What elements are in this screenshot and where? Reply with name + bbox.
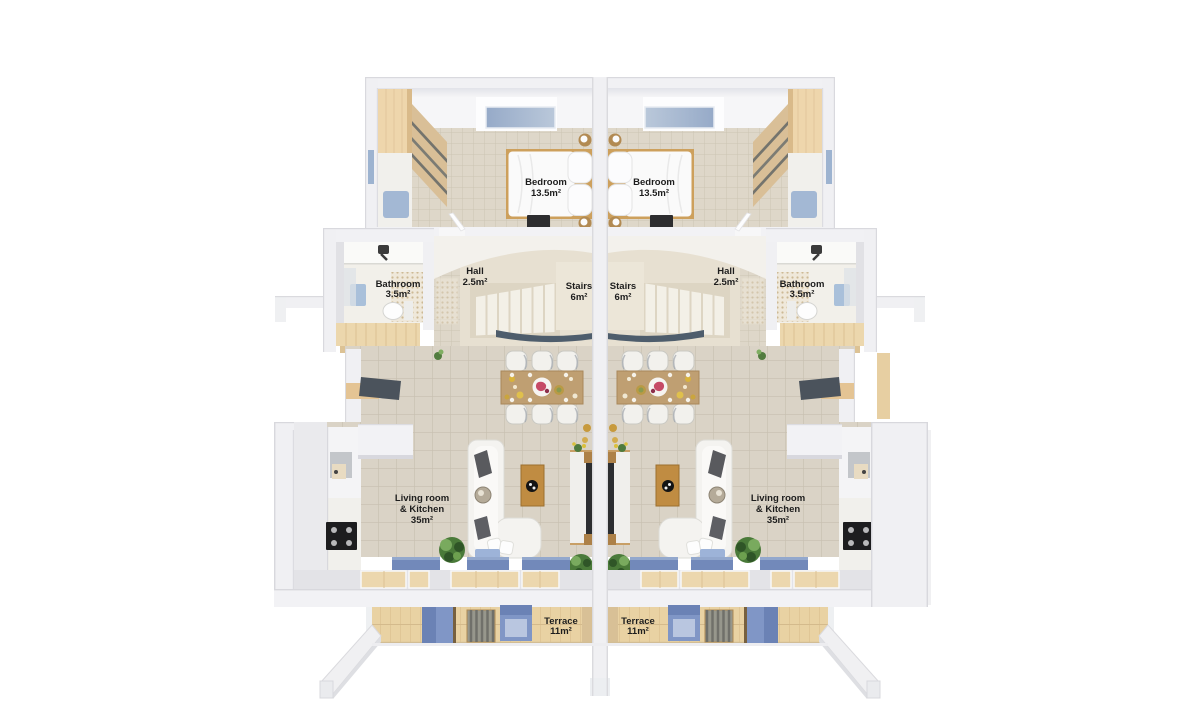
svg-text:Bedroom: Bedroom <box>525 177 567 188</box>
svg-text:3.5m²: 3.5m² <box>790 289 815 300</box>
svg-text:Living room: Living room <box>751 493 805 504</box>
svg-text:6m²: 6m² <box>615 292 632 303</box>
svg-text:& Kitchen: & Kitchen <box>756 504 801 515</box>
svg-text:2.5m²: 2.5m² <box>463 277 488 288</box>
svg-text:13.5m²: 13.5m² <box>531 188 561 199</box>
svg-text:Stairs: Stairs <box>566 281 592 292</box>
svg-text:3.5m²: 3.5m² <box>386 289 411 300</box>
svg-text:35m²: 35m² <box>411 515 433 526</box>
svg-text:2.5m²: 2.5m² <box>714 277 739 288</box>
svg-text:6m²: 6m² <box>571 292 588 303</box>
svg-text:& Kitchen: & Kitchen <box>400 504 445 515</box>
svg-text:Bedroom: Bedroom <box>633 177 675 188</box>
svg-text:13.5m²: 13.5m² <box>639 188 669 199</box>
svg-text:35m²: 35m² <box>767 515 789 526</box>
svg-text:11m²: 11m² <box>627 626 649 637</box>
svg-text:Stairs: Stairs <box>610 281 636 292</box>
svg-text:11m²: 11m² <box>550 626 572 637</box>
svg-text:Hall: Hall <box>466 266 483 277</box>
svg-text:Living room: Living room <box>395 493 449 504</box>
svg-text:Hall: Hall <box>717 266 734 277</box>
